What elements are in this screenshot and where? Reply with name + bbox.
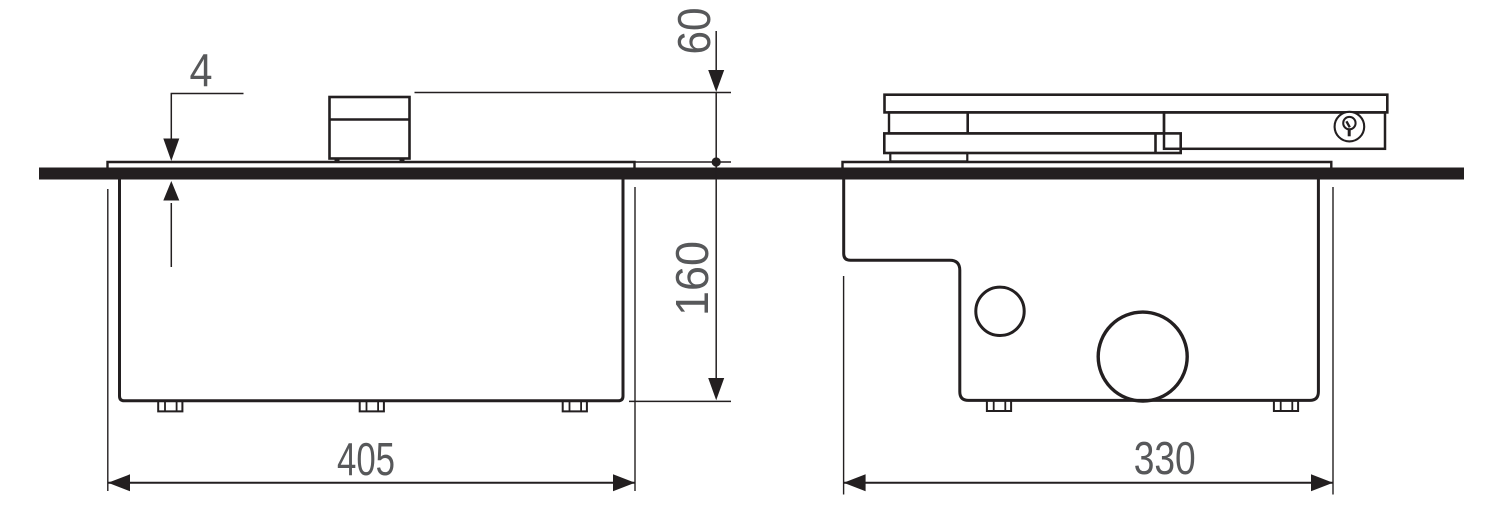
svg-text:4: 4 — [190, 44, 213, 96]
svg-text:405: 405 — [337, 433, 395, 485]
svg-text:160: 160 — [666, 241, 718, 316]
svg-text:60: 60 — [668, 8, 720, 55]
svg-text:330: 330 — [1134, 432, 1196, 484]
